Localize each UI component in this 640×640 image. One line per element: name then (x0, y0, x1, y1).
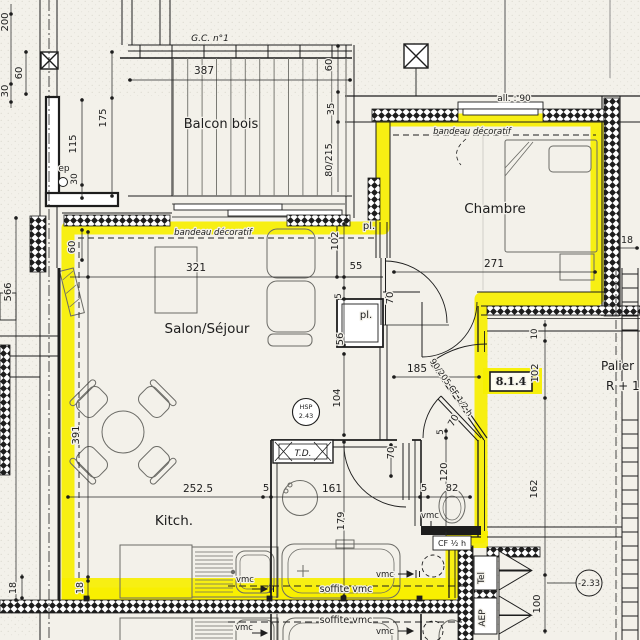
cf-wc-label: CF ½ h (438, 539, 466, 548)
ep-label: ep (58, 164, 70, 174)
dim-252-5: 252.5 (183, 483, 213, 495)
level-value: -2.33 (578, 579, 600, 589)
hsp-label: HSP (300, 403, 313, 411)
dim-5-closet: 5 (334, 293, 344, 299)
dim-566: 566 (3, 282, 14, 301)
vmc-bath-label: vmc (376, 570, 394, 580)
ep-marker-icon (59, 178, 68, 187)
dim-60-left: 60 (14, 67, 25, 80)
soffite-label: soffite vmc (320, 584, 373, 595)
dim-161: 161 (322, 483, 342, 495)
dim-30-ep: 30 (70, 173, 80, 185)
dim-179: 179 (336, 511, 347, 530)
dim-5-kitchen: 5 (263, 483, 269, 494)
dim-200: 200 (0, 12, 11, 31)
unit-number: 8.1.4 (496, 375, 527, 388)
dim-56: 56 (335, 333, 346, 346)
allege-label: all. : 90 (497, 94, 531, 104)
soffite-lower-label: soffite vmc (320, 615, 373, 626)
wall-corner (46, 97, 59, 206)
dim-271: 271 (484, 258, 504, 270)
dim-5-wc: 5 (421, 483, 427, 494)
room-label-living: Salon/Séjour (165, 321, 250, 337)
vmc-kitchen-lower-label: vmc (235, 623, 253, 633)
dim-55: 55 (350, 261, 363, 272)
dim-10: 10 (530, 329, 540, 340)
bandeau-bedroom-label: bandeau décoratif (433, 126, 513, 137)
dim-18-right: 18 (621, 235, 633, 246)
dim-60-living: 60 (67, 241, 78, 254)
room-label-kitchen: Kitch. (155, 513, 193, 529)
dim-70-doorA: 70 (385, 292, 396, 305)
dim-185: 185 (407, 363, 427, 375)
room-label-landing-2: R + 1 (606, 379, 640, 393)
dim-82: 82 (446, 483, 459, 494)
dim-115: 115 (68, 134, 79, 153)
dim-60-window: 60 (324, 59, 335, 72)
tel-duct-label: Tel (477, 572, 487, 585)
dim-162: 162 (529, 479, 540, 498)
dim-35-window: 35 (326, 103, 337, 116)
dim-391: 391 (71, 425, 82, 444)
dim-175: 175 (98, 108, 109, 127)
room-label-landing-1: Palier (601, 359, 634, 373)
dim-18-b: 18 (75, 582, 86, 594)
dim-102-closet: 102 (330, 231, 341, 250)
dim-321: 321 (186, 262, 206, 274)
dim-387: 387 (194, 65, 214, 77)
closet-top-label: pl. (363, 221, 375, 232)
vmc-bath-lower-label: vmc (376, 627, 394, 637)
room-label-bedroom: Chambre (464, 201, 526, 217)
td-label: T.D. (294, 449, 311, 459)
dim-100: 100 (532, 594, 543, 613)
dim-70-bath: 70 (386, 447, 397, 460)
floorplan-sheet: G.C. n°1 387 200 30 60 175 115 ep 30 Bal… (0, 0, 640, 640)
dim-30-left: 30 (0, 85, 11, 98)
dim-104: 104 (332, 388, 343, 407)
closet-bottom-label: pl. (360, 310, 372, 321)
floorplan-drawing: G.C. n°1 387 200 30 60 175 115 ep 30 Bal… (0, 0, 640, 640)
dim-102-palier: 102 (530, 363, 541, 382)
room-label-balcony: Balcon bois (184, 117, 259, 132)
vmc-kitchen-label: vmc (236, 575, 254, 585)
dim-120: 120 (439, 462, 450, 481)
bandeau-living-label: bandeau décoratif (174, 227, 254, 238)
dim-18-a: 18 (8, 582, 19, 594)
hsp-value: 2.43 (299, 412, 313, 420)
dim-5-wc2: 5 (436, 429, 446, 435)
dim-80-215: 80/215 (324, 143, 335, 176)
gc-label: G.C. n°1 (191, 34, 229, 44)
aep-duct-label: AEP (478, 609, 488, 627)
vmc-wc-label: vmc (421, 511, 439, 521)
